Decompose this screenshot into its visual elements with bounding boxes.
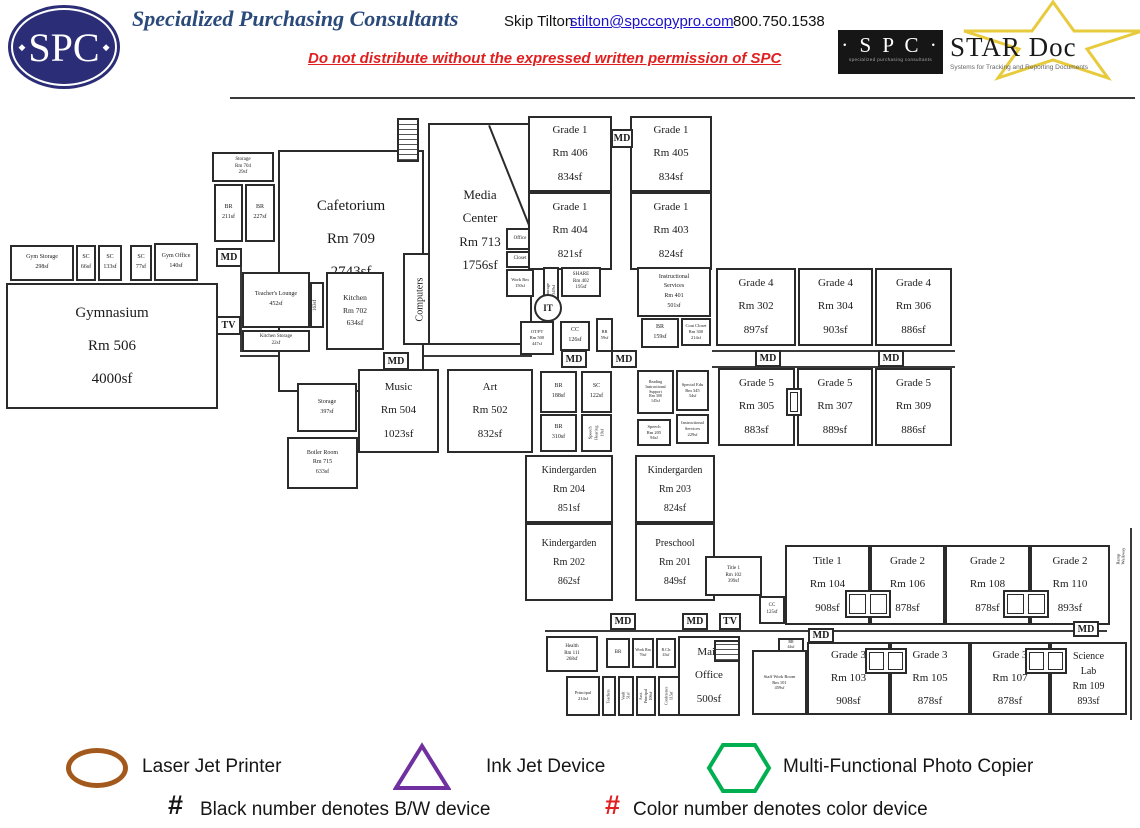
black-hash-icon: # xyxy=(168,790,183,821)
room-staff-work: Staff Work Room Rm 101 459sf xyxy=(752,650,807,715)
room-label: Conference 115sf xyxy=(664,687,674,705)
company-title: Specialized Purchasing Consultants xyxy=(132,6,458,32)
room-cc-126: CC 126sf xyxy=(560,321,590,351)
entry-hatch xyxy=(714,640,740,662)
room-teachers-lounge: Teacher's Lounge 452sf xyxy=(242,272,310,328)
room-b-cls: B.Cls 43sf xyxy=(656,638,676,668)
room-work-rm-small: Work Rm 150sf xyxy=(506,269,534,297)
room-title1-102: Title 1 Rm 102 399sf xyxy=(705,556,762,596)
md-marker: MD xyxy=(561,350,587,368)
device-cubby-icon xyxy=(786,388,802,416)
legend-copier-label: Multi-Functional Photo Copier xyxy=(783,756,1033,778)
room-grade4-302: Grade 4 Rm 302 897sf xyxy=(716,268,796,346)
md-marker: MD xyxy=(1073,621,1099,637)
floor-plan-page: SPC Specialized Purchasing Consultants S… xyxy=(0,0,1140,828)
room-storage-704: Storage Rm 704 29sf xyxy=(212,152,274,182)
laser-jet-printer-icon xyxy=(66,748,128,788)
stardoc-spc-text: · S P C · xyxy=(838,34,943,57)
room-health: Health Rm 111 268sf xyxy=(546,636,598,672)
room-kitchen: Kitchen Rm 702 634sf xyxy=(326,272,384,350)
room-conference: Conference 115sf xyxy=(658,676,680,716)
corridor-wall xyxy=(712,350,955,352)
room-grade1-404: Grade 1 Rm 404 821sf xyxy=(528,192,612,270)
room-sc-66: SC 66sf xyxy=(76,245,96,281)
room-br-59: BR 59sf xyxy=(596,318,613,352)
md-marker: MD xyxy=(682,613,708,630)
room-reading-support: Reading Instructional Support Rm 308 145… xyxy=(637,370,674,414)
stardoc-tagline: Systems for Tracking and Reporting Docum… xyxy=(950,64,1088,71)
room-art: Art Rm 502 832sf xyxy=(447,369,533,453)
md-marker: MD xyxy=(755,350,781,367)
room-instructional-services: Instructional Services Rm 401 501sf xyxy=(637,267,711,317)
spc-logo-text: SPC xyxy=(13,10,115,84)
outer-wall xyxy=(1130,528,1132,720)
room-br-office: BR xyxy=(606,638,630,668)
room-grade5-307: Grade 5 Rm 307 889sf xyxy=(797,368,873,446)
red-hash-icon: # xyxy=(605,790,620,821)
md-marker: MD xyxy=(383,352,409,370)
room-teachers: Teachers xyxy=(602,676,616,716)
md-marker: MD xyxy=(808,628,834,643)
room-grade5-309: Grade 5 Rm 309 886sf xyxy=(875,368,952,446)
md-marker: MD xyxy=(216,248,242,267)
it-marker: IT xyxy=(534,294,562,322)
stairs-hatch xyxy=(397,118,419,162)
room-boiler: Boiler Room Rm 715 633sf xyxy=(287,437,358,489)
room-storage-397: Storage 397sf xyxy=(297,383,357,432)
room-instructional-services-2: Instructional Services 229sf xyxy=(676,414,709,444)
room-grade1-403: Grade 1 Rm 403 824sf xyxy=(630,192,712,270)
room-speech-205: Speech Rm 205 94sf xyxy=(637,419,671,446)
room-special-edu: Special Edu Rm 345 34sf xyxy=(676,370,709,411)
room-br-310: BR 310sf xyxy=(540,414,577,452)
room-br-44: BR 44sf xyxy=(778,638,804,652)
stardoc-name: STAR Doc xyxy=(950,32,1077,63)
room-label: 163sf xyxy=(314,299,321,310)
room-cc-125: CC 125sf xyxy=(759,596,785,624)
room-kindergarden-204: Kindergarden Rm 204 851sf xyxy=(525,455,613,523)
room-share: SHARE Rm 402 195sf xyxy=(561,267,601,297)
room-asst-principal: Asst. Principal 106sf xyxy=(636,676,656,716)
room-coat-closet: Coat Closet Rm 300 214sf xyxy=(681,318,711,346)
room-kindergarden-202: Kindergarden Rm 202 862sf xyxy=(525,523,613,601)
md-marker: MD xyxy=(610,613,636,630)
room-grade1-406: Grade 1 Rm 406 834sf xyxy=(528,116,612,192)
room-vault: Vault 51sf xyxy=(618,676,634,716)
plan-top-wall xyxy=(230,97,1135,99)
room-sc-122: SC 122sf xyxy=(581,371,612,413)
room-work-76: Work Rm 76sf xyxy=(632,638,654,668)
device-cubby-icon xyxy=(1003,590,1049,618)
room-sc-133: SC 133sf xyxy=(98,245,122,281)
room-label: Teachers xyxy=(607,689,612,703)
photo-copier-icon xyxy=(706,742,772,794)
md-marker: MD xyxy=(611,129,633,148)
room-kitchen-storage: Kitchen Storage 22sf xyxy=(242,330,310,352)
room-principal: Principal 214sf xyxy=(566,676,600,716)
legend-laser-label: Laser Jet Printer xyxy=(142,756,281,778)
room-speech-hearing: Speech Hearing 19sf xyxy=(581,414,612,452)
room-gym-storage: Gym Storage 298sf xyxy=(10,245,74,281)
room-grade4-306: Grade 4 Rm 306 886sf xyxy=(875,268,952,346)
tv-marker: TV xyxy=(216,316,241,335)
room-preschool-201: Preschool Rm 201 849sf xyxy=(635,523,715,601)
room-label: Asst. Principal 106sf xyxy=(639,688,653,704)
legend-inkjet-label: Ink Jet Device xyxy=(486,756,605,778)
walkway-label: Ramp Walkway xyxy=(1113,525,1127,587)
contact-email-link[interactable]: stilton@spccopypro.com xyxy=(570,13,734,30)
legend-bw-note: Black number denotes B/W device xyxy=(200,799,490,821)
tv-marker: TV xyxy=(719,613,741,630)
device-cubby-icon xyxy=(845,590,891,618)
device-cubby-icon xyxy=(1025,648,1067,674)
ink-jet-device-icon xyxy=(393,742,451,792)
room-label: Computers xyxy=(415,277,426,321)
stardoc-spc-box: · S P C · specialized purchasing consult… xyxy=(838,30,943,74)
room-sc-77: SC 77sf xyxy=(130,245,152,281)
room-grade4-304: Grade 4 Rm 304 903sf xyxy=(798,268,873,346)
device-cubby-icon xyxy=(865,648,907,674)
md-marker: MD xyxy=(878,350,904,367)
room-label: Speech Hearing 19sf xyxy=(588,426,606,441)
room-br-227: BR 227sf xyxy=(245,184,275,242)
contact-phone: 800.750.1538 xyxy=(733,13,825,30)
distribution-notice: Do not distribute without the expressed … xyxy=(308,50,781,67)
room-grade5-305: Grade 5 Rm 305 883sf xyxy=(718,368,795,446)
legend-color-note: Color number denotes color device xyxy=(633,799,928,821)
room-kindergarden-203: Kindergarden Rm 203 824sf xyxy=(635,455,715,523)
room-163sf: 163sf xyxy=(310,282,324,328)
room-label: Vault 51sf xyxy=(621,692,631,700)
room-br-159: BR 159sf xyxy=(641,318,679,348)
room-br-211: BR 211sf xyxy=(214,184,243,242)
contact-name: Skip Tilton xyxy=(504,13,573,30)
room-grade1-405: Grade 1 Rm 405 834sf xyxy=(630,116,712,192)
room-otpt: OT/PT Rm 500 447sf xyxy=(520,321,554,355)
room-music: Music Rm 504 1023sf xyxy=(358,369,439,453)
room-gym-office: Gym Office 140sf xyxy=(154,243,198,281)
md-marker: MD xyxy=(611,350,637,368)
room-label: Ramp Walkway xyxy=(1115,548,1125,565)
spc-logo: SPC xyxy=(8,5,120,89)
room-br-188: BR 188sf xyxy=(540,371,577,413)
stardoc-spc-tagline: specialized purchasing consultants xyxy=(838,57,943,62)
room-gymnasium: Gymnasium Rm 506 4000sf xyxy=(6,283,218,409)
